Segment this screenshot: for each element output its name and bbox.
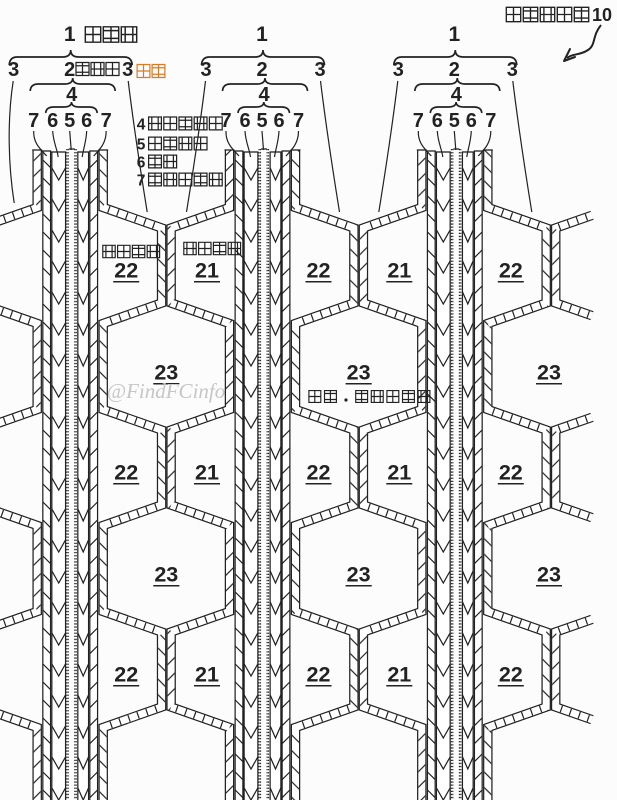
svg-text:22: 22 xyxy=(307,259,331,283)
svg-text:7: 7 xyxy=(101,110,112,132)
svg-text:22: 22 xyxy=(307,461,331,485)
svg-text:3: 3 xyxy=(507,59,518,81)
svg-text:22: 22 xyxy=(499,259,523,283)
svg-text:@FindFCinfo: @FindFCinfo xyxy=(107,379,225,403)
svg-text:23: 23 xyxy=(154,563,178,587)
svg-text:23: 23 xyxy=(537,361,561,385)
svg-text:2: 2 xyxy=(449,59,460,81)
svg-text:3: 3 xyxy=(200,59,211,81)
svg-text:22: 22 xyxy=(114,461,138,485)
svg-text:3: 3 xyxy=(393,59,404,81)
svg-text:6: 6 xyxy=(432,110,443,132)
svg-text:4: 4 xyxy=(137,117,146,134)
svg-text:22: 22 xyxy=(499,461,523,485)
svg-text:1: 1 xyxy=(64,23,76,46)
svg-text:21: 21 xyxy=(387,259,411,283)
svg-text:21: 21 xyxy=(387,663,411,687)
svg-text:3: 3 xyxy=(122,59,133,81)
svg-text:1: 1 xyxy=(256,23,268,46)
svg-text:21: 21 xyxy=(195,259,219,283)
svg-text:23: 23 xyxy=(347,361,371,385)
svg-text:2: 2 xyxy=(64,59,75,81)
svg-text:2: 2 xyxy=(256,59,267,81)
svg-text:6: 6 xyxy=(81,110,92,132)
svg-text:22: 22 xyxy=(307,663,331,687)
svg-text:22: 22 xyxy=(499,663,523,687)
svg-text:21: 21 xyxy=(195,663,219,687)
svg-text:6: 6 xyxy=(137,155,146,172)
svg-text:21: 21 xyxy=(387,461,411,485)
svg-text:5: 5 xyxy=(449,110,460,132)
svg-text:21: 21 xyxy=(195,461,219,485)
svg-text:22: 22 xyxy=(114,663,138,687)
svg-text:23: 23 xyxy=(347,563,371,587)
svg-text:23: 23 xyxy=(537,563,561,587)
svg-text:5: 5 xyxy=(137,137,146,154)
svg-text:7: 7 xyxy=(28,110,39,132)
svg-text:7: 7 xyxy=(485,110,496,132)
svg-text:3: 3 xyxy=(8,59,19,81)
svg-text:6: 6 xyxy=(47,110,58,132)
svg-text:7: 7 xyxy=(293,110,304,132)
svg-text:6: 6 xyxy=(239,110,250,132)
svg-text:22: 22 xyxy=(114,259,138,283)
svg-text:10: 10 xyxy=(592,5,612,25)
svg-text:6: 6 xyxy=(466,110,477,132)
svg-text:6: 6 xyxy=(273,110,284,132)
svg-text:7: 7 xyxy=(413,110,424,132)
svg-text:3: 3 xyxy=(314,59,325,81)
svg-text:5: 5 xyxy=(256,110,267,132)
svg-text:7: 7 xyxy=(137,173,146,190)
svg-text:5: 5 xyxy=(64,110,75,132)
svg-text:1: 1 xyxy=(448,23,460,46)
